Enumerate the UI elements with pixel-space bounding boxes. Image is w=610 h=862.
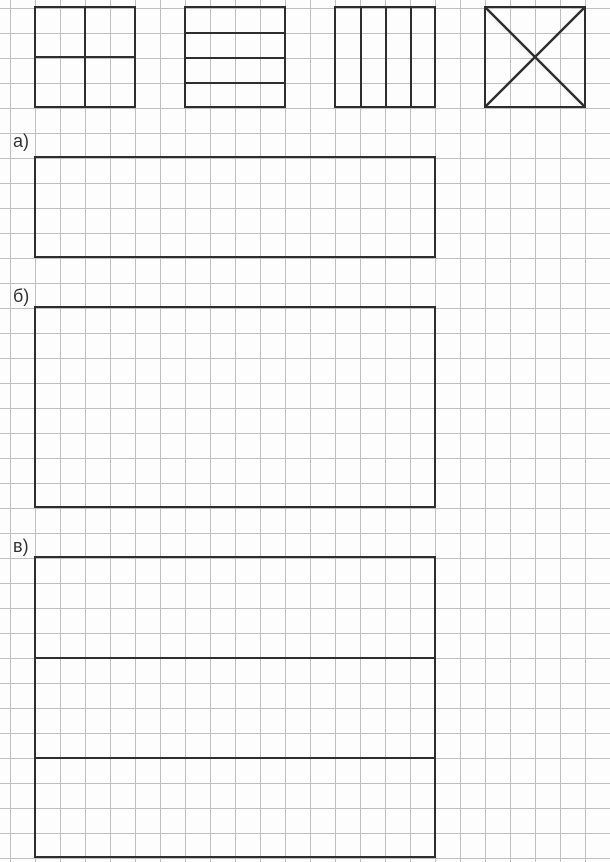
figure-divider-horizontal	[36, 56, 134, 58]
worksheet-page: а) б) в)	[0, 0, 610, 862]
task-label-b: б)	[13, 286, 29, 307]
figure-divider-horizontal	[36, 657, 434, 659]
task-rectangle-b	[34, 306, 436, 508]
figure-divider-horizontal	[186, 57, 284, 59]
figure-divider-horizontal	[186, 32, 284, 34]
task-label-a: а)	[13, 131, 29, 152]
figure-divider-vertical	[385, 8, 387, 106]
figure-divider-vertical	[410, 8, 412, 106]
example-square-horizontal-strips-figure	[184, 6, 286, 108]
figure-divider-horizontal	[36, 757, 434, 759]
example-square-quarters-figure	[34, 6, 136, 108]
diagonal-cross-lines	[486, 8, 584, 106]
figure-divider-horizontal	[186, 82, 284, 84]
example-square-vertical-strips-figure	[334, 6, 436, 108]
task-rectangle-v	[34, 556, 436, 858]
example-square-diagonals-figure	[484, 6, 586, 108]
task-label-v: в)	[13, 536, 29, 557]
task-rectangle-a	[34, 156, 436, 258]
figure-divider-vertical	[360, 8, 362, 106]
